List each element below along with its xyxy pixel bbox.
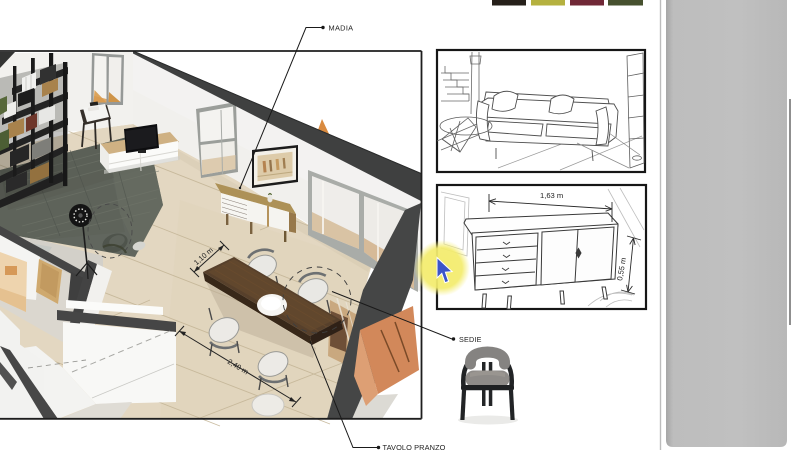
svg-text:TAVOLO PRANZO: TAVOLO PRANZO (383, 443, 446, 450)
svg-text:1,63 m: 1,63 m (540, 191, 563, 200)
svg-text:MADIA: MADIA (329, 24, 354, 33)
svg-text:SEDIE: SEDIE (459, 335, 482, 344)
